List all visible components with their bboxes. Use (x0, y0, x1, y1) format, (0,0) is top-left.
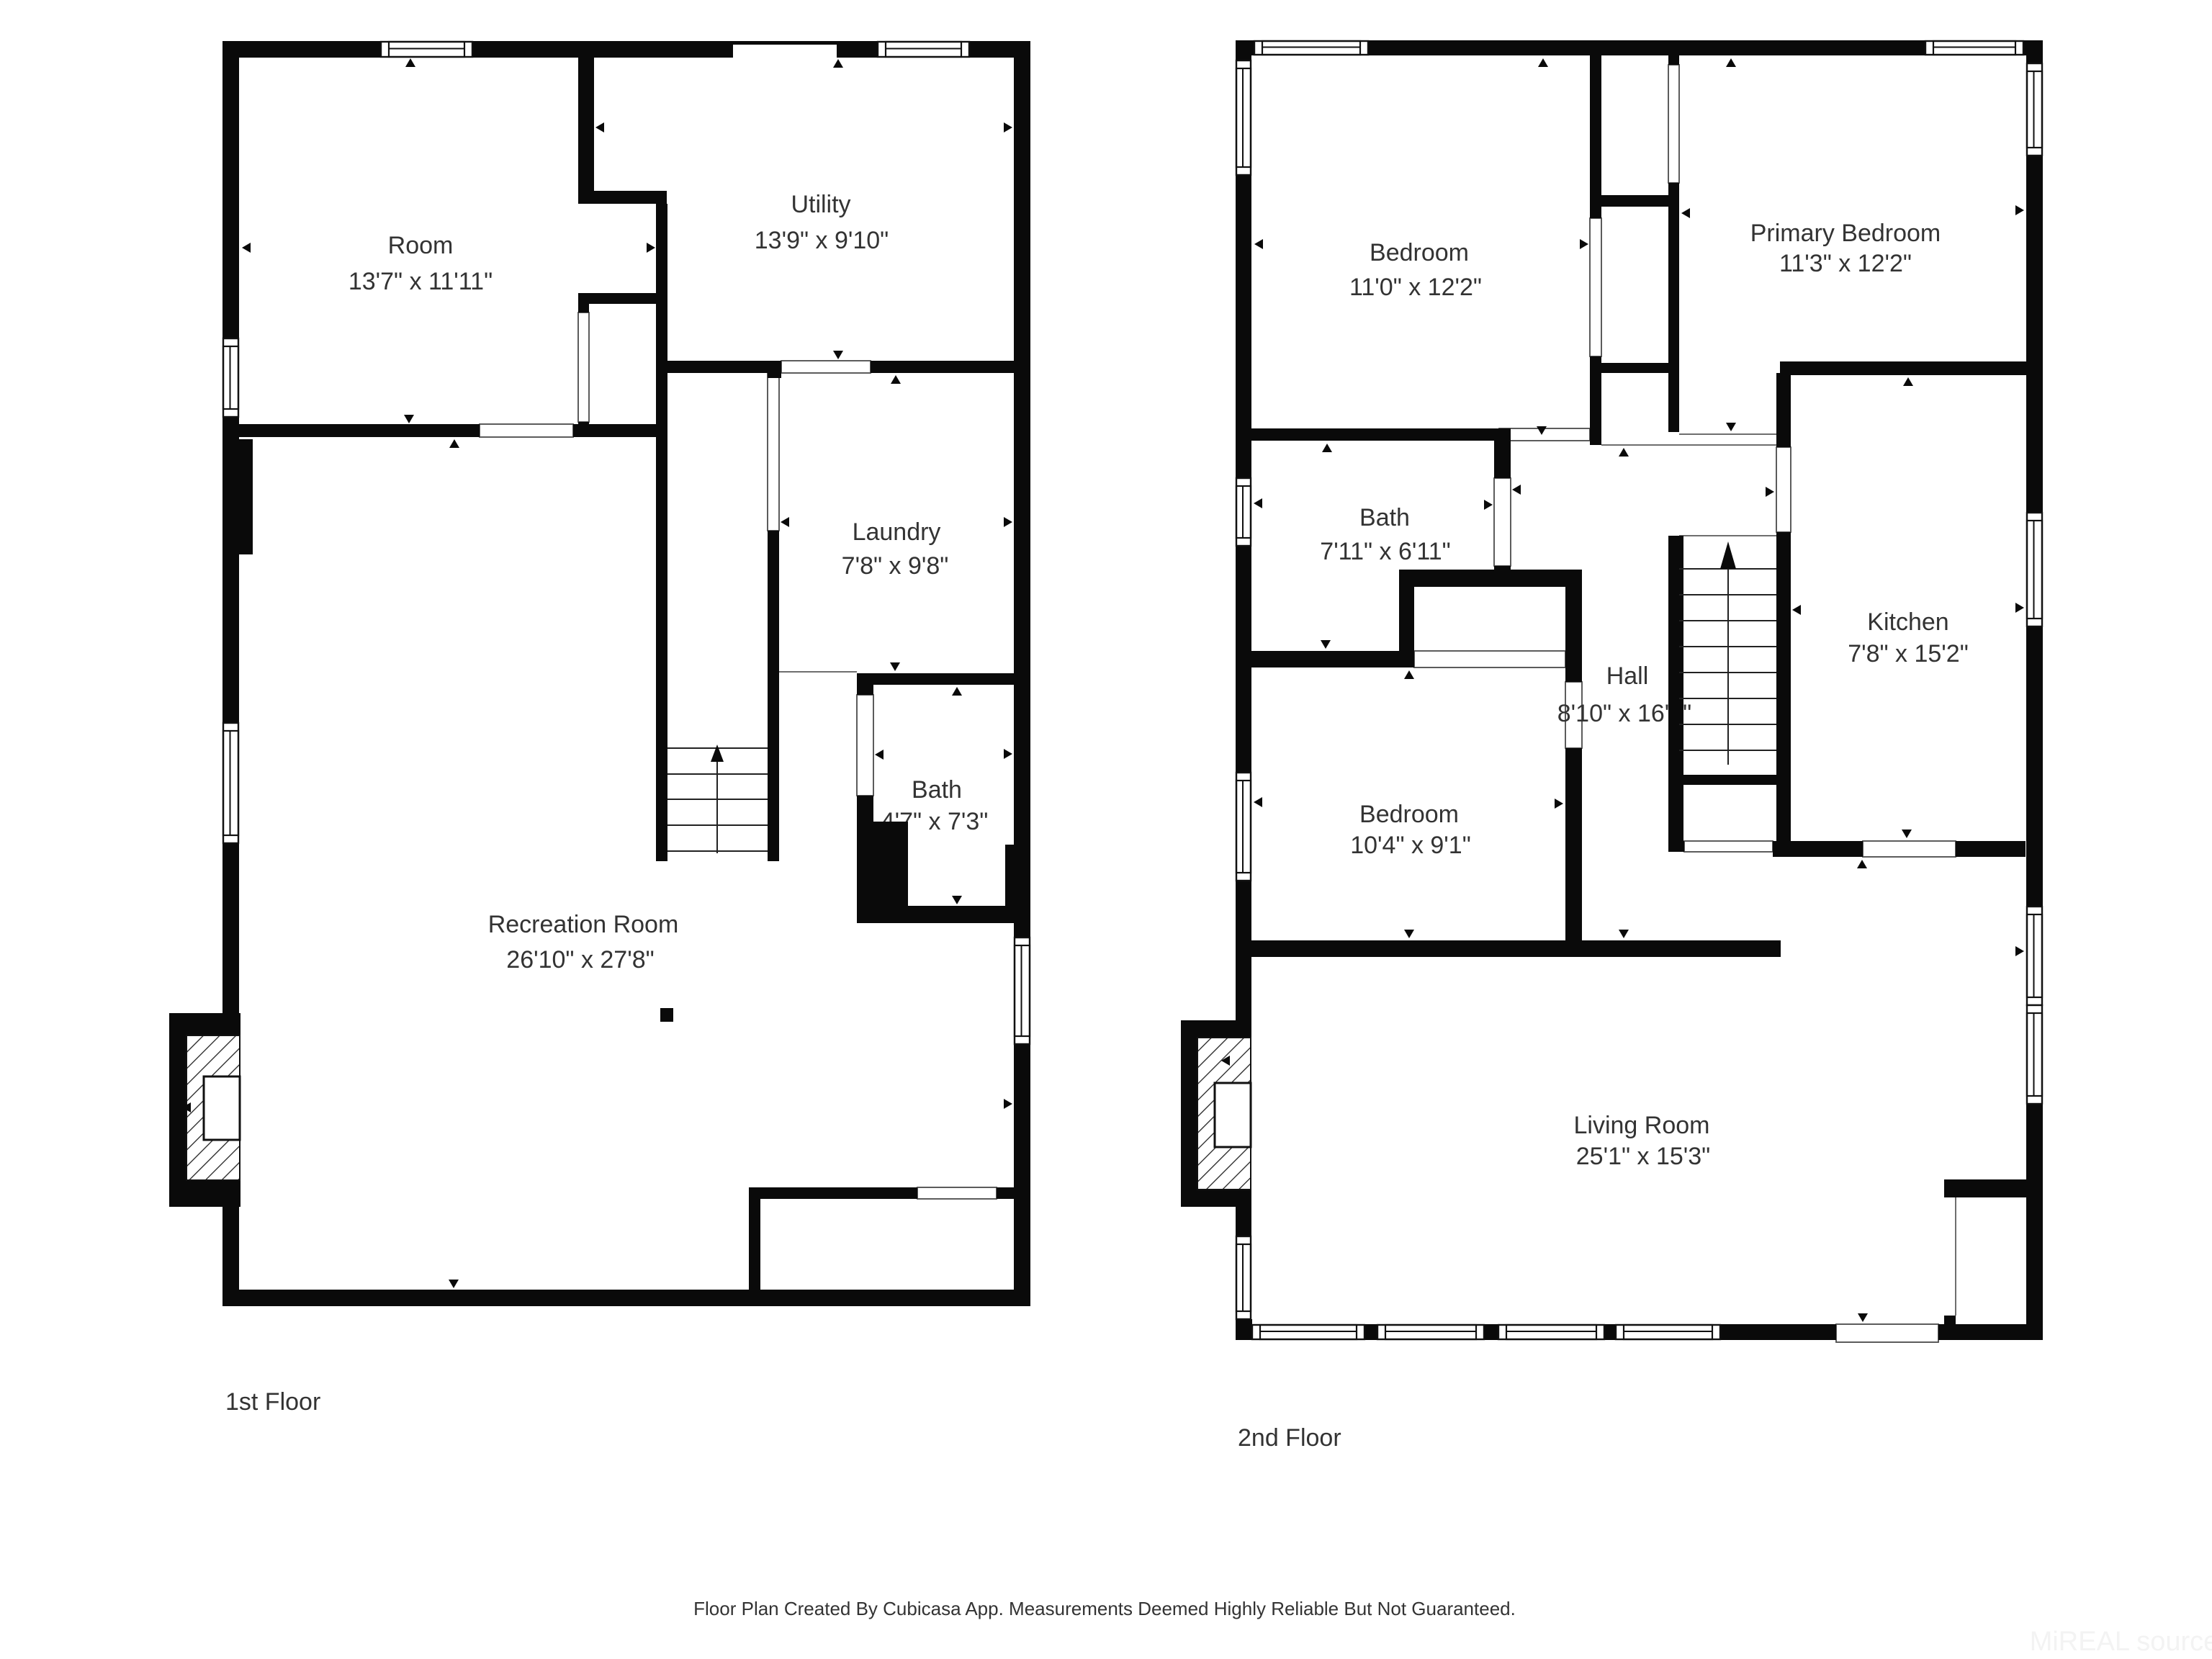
svg-text:7'8" x 9'8": 7'8" x 9'8" (842, 552, 949, 580)
svg-text:13'7" x 11'11": 13'7" x 11'11" (349, 268, 493, 295)
svg-text:1st Floor: 1st Floor (225, 1388, 320, 1416)
svg-text:13'9" x 9'10": 13'9" x 9'10" (755, 227, 889, 254)
svg-text:Living Room: Living Room (1574, 1112, 1710, 1139)
svg-text:MiREAL source: MiREAL source (2030, 1627, 2212, 1657)
svg-text:Hall: Hall (1606, 662, 1649, 690)
svg-text:Room: Room (388, 232, 454, 259)
svg-text:Kitchen: Kitchen (1867, 608, 1948, 636)
svg-text:7'8" x 15'2": 7'8" x 15'2" (1848, 640, 1969, 667)
svg-text:11'3" x 12'2": 11'3" x 12'2" (1779, 250, 1912, 277)
svg-text:Bath: Bath (1359, 504, 1410, 531)
svg-text:11'0" x 12'2": 11'0" x 12'2" (1349, 274, 1482, 301)
svg-text:Recreation Room: Recreation Room (488, 911, 679, 938)
svg-text:26'10" x 27'8": 26'10" x 27'8" (506, 946, 654, 974)
svg-text:25'1" x 15'3": 25'1" x 15'3" (1576, 1143, 1710, 1170)
svg-text:Primary Bedroom: Primary Bedroom (1750, 220, 1941, 247)
svg-text:Laundry: Laundry (853, 518, 941, 546)
svg-text:Bedroom: Bedroom (1359, 801, 1459, 828)
svg-text:2nd Floor: 2nd Floor (1238, 1424, 1341, 1452)
svg-text:Bath: Bath (912, 776, 962, 804)
svg-text:Floor Plan Created By Cubicasa: Floor Plan Created By Cubicasa App. Meas… (693, 1598, 1516, 1619)
svg-text:Utility: Utility (791, 191, 850, 218)
svg-text:Bedroom: Bedroom (1370, 239, 1469, 266)
svg-text:7'11" x 6'11": 7'11" x 6'11" (1320, 538, 1450, 565)
svg-text:10'4" x 9'1": 10'4" x 9'1" (1350, 832, 1471, 859)
